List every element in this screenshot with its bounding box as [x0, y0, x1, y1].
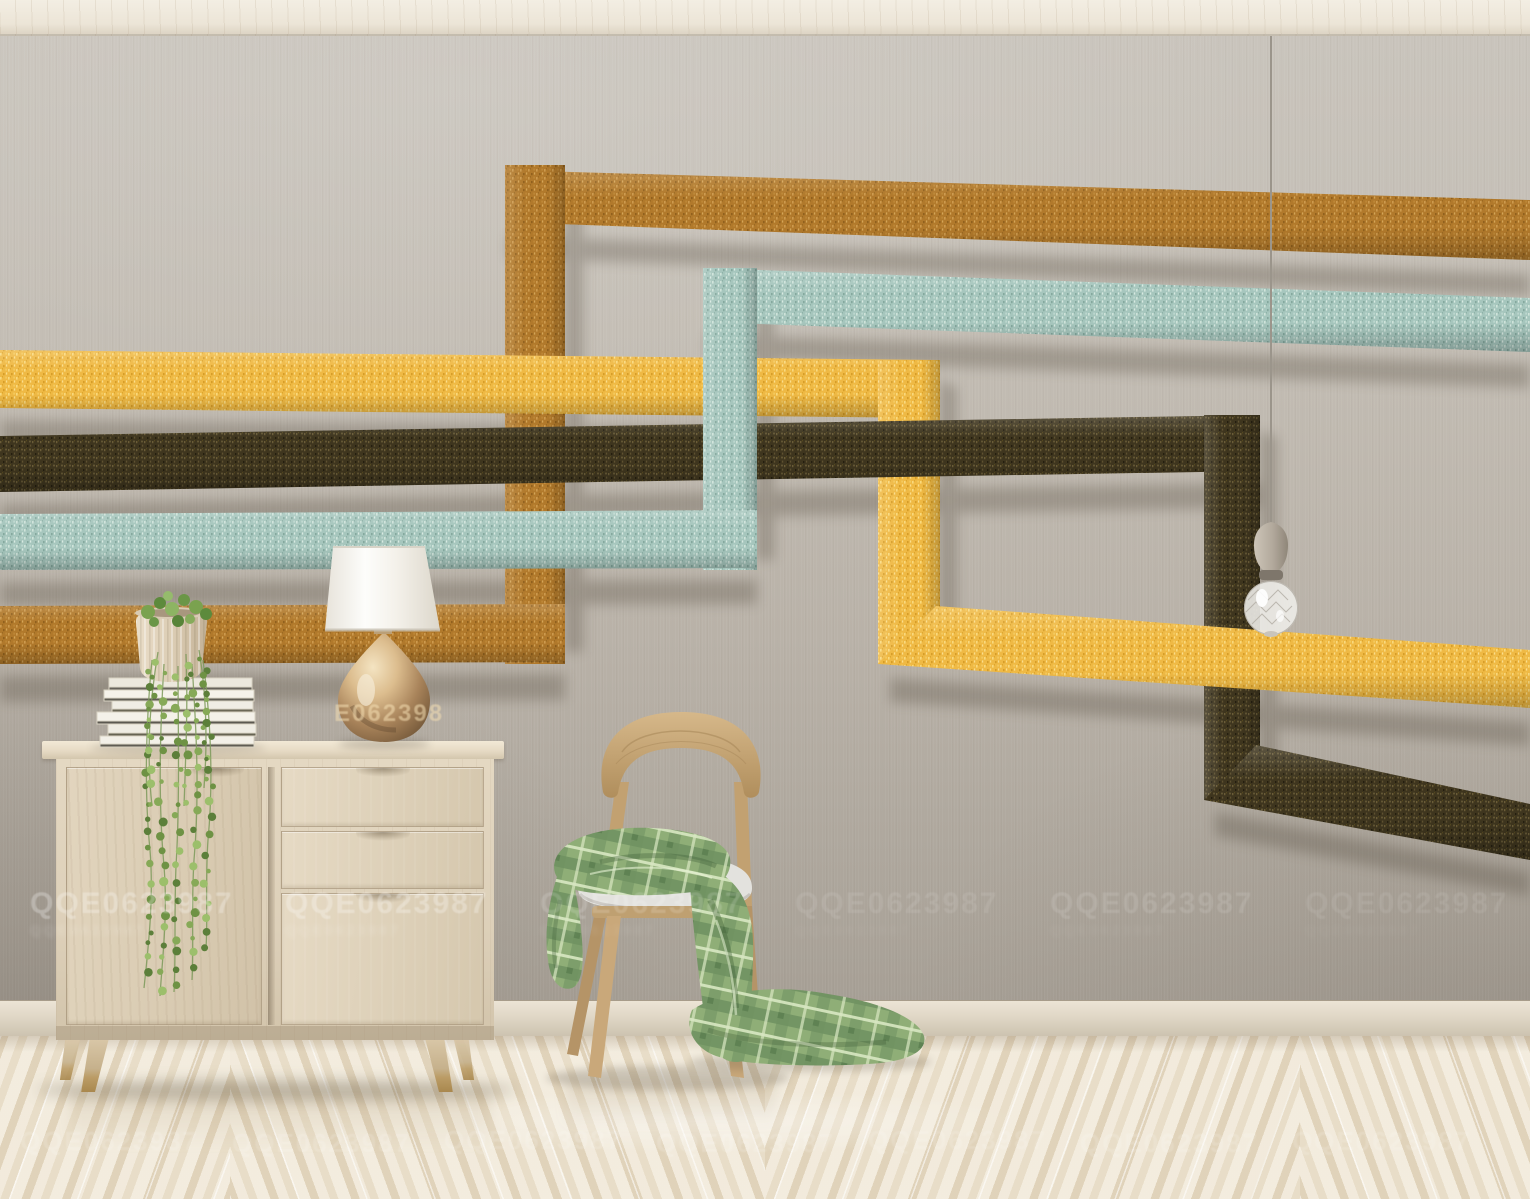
room-scene: QQE0623987QQE0623987 QQE0623987QQE062398… [0, 0, 1530, 1199]
drawer-handle-notch [356, 832, 410, 841]
cabinet-drawer-3 [281, 893, 484, 1025]
chair-floor-reflection [566, 1080, 776, 1140]
floor-plank-column [1300, 1036, 1530, 1199]
cabinet-floor-reflection [70, 1090, 490, 1162]
drawer-handle-notch [356, 894, 410, 903]
ceiling [0, 0, 1530, 36]
drawer-handle-notch [356, 768, 410, 777]
cabinet-top [42, 741, 504, 759]
door-handle-notch [190, 768, 244, 777]
cabinet-divider [268, 767, 275, 1025]
cabinet-door [66, 767, 262, 1025]
